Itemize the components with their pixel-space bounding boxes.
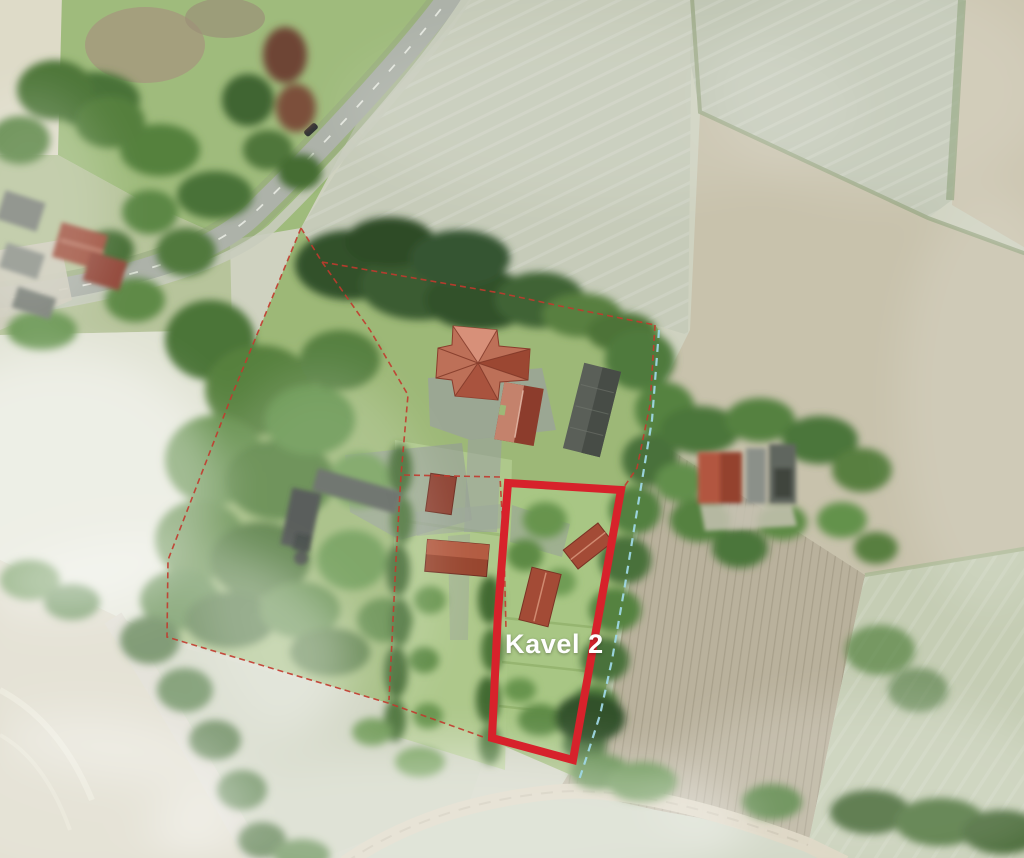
- barn-roof: [746, 448, 766, 504]
- barn-dark-panel: [774, 468, 792, 498]
- east-farm: [698, 444, 797, 531]
- aerial-site-plan: Kavel 2: [0, 0, 1024, 858]
- kavel2-label: Kavel 2: [505, 629, 604, 660]
- aerial-photo: [0, 0, 1024, 858]
- roof-facet: [720, 452, 742, 504]
